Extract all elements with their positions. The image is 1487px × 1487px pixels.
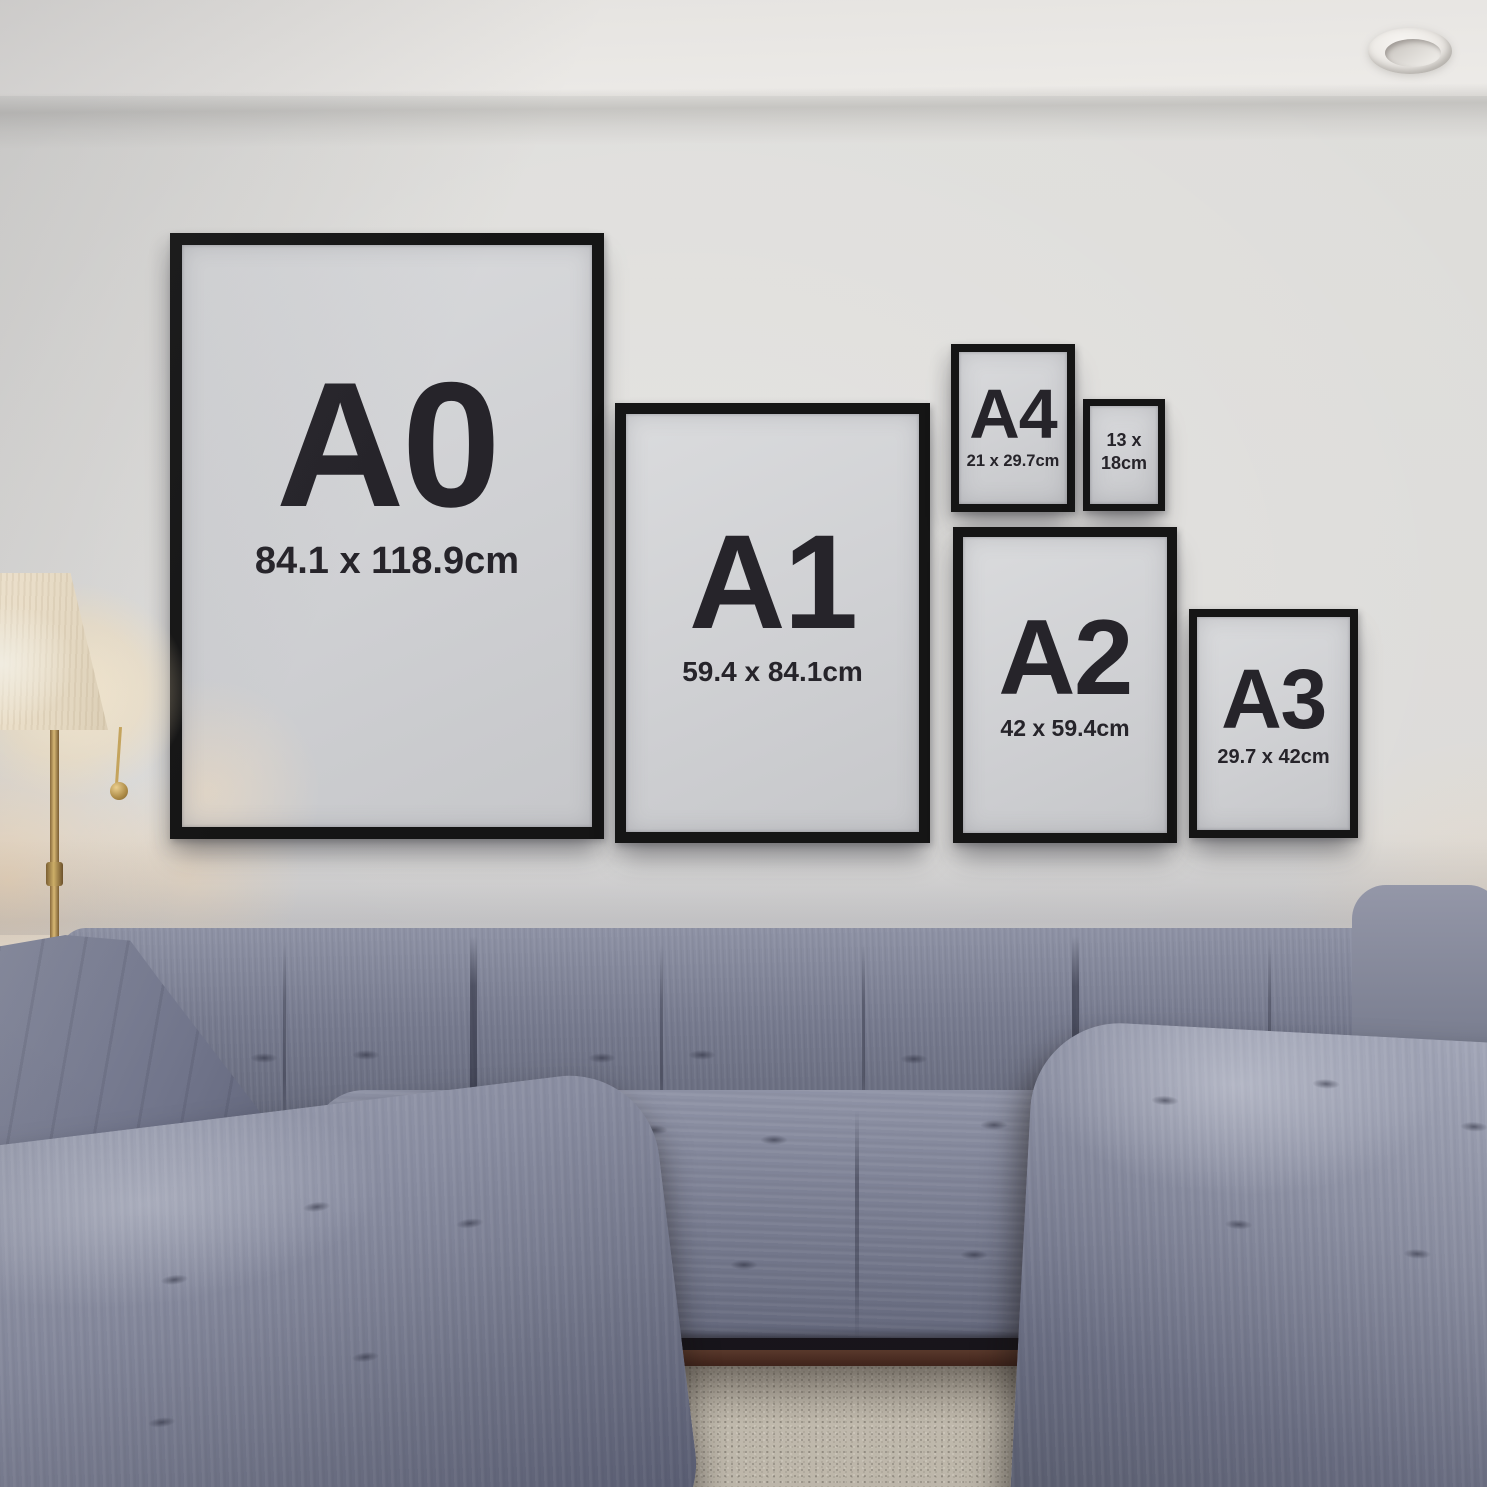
tuft-dimple — [900, 1054, 928, 1064]
tuft-dimple — [1224, 1219, 1252, 1230]
tuft-dimple — [980, 1120, 1008, 1130]
poster-frame-a1: A1 59.4 x 84.1cm — [615, 403, 930, 843]
recessed-ceiling-light-inner — [1385, 39, 1441, 67]
poster-frame-a2: A2 42 x 59.4cm — [953, 527, 1177, 843]
tuft-dimple — [250, 1053, 278, 1063]
tuft-dimple — [455, 1217, 484, 1230]
poster-a3-size: 29.7 x 42cm — [1217, 746, 1329, 769]
poster-a3-text: A3 29.7 x 42cm — [1217, 664, 1329, 768]
tuft-dimple — [351, 1350, 380, 1363]
poster-a4: A4 21 x 29.7cm — [959, 352, 1067, 504]
poster-frame-a0: A0 84.1 x 118.9cm — [170, 233, 604, 839]
poster-a0: A0 84.1 x 118.9cm — [182, 245, 592, 827]
tuft-dimple — [730, 1260, 758, 1270]
wall-shadow-behind-sofa — [0, 840, 1487, 935]
seat-cushion-crease — [855, 1110, 859, 1340]
poster-a4-text: A4 21 x 29.7cm — [967, 385, 1060, 472]
poster-a4-label: A4 — [969, 385, 1056, 445]
poster-13x18: 13 x 18cm — [1090, 406, 1158, 504]
tuft-dimple — [352, 1050, 380, 1060]
poster-a0-label: A0 — [276, 369, 498, 520]
poster-a2-size: 42 x 59.4cm — [1000, 715, 1129, 742]
tuft-dimple — [160, 1273, 189, 1286]
tuft-dimple — [147, 1416, 176, 1429]
poster-frame-13x18: 13 x 18cm — [1083, 399, 1165, 511]
poster-a3: A3 29.7 x 42cm — [1197, 617, 1350, 830]
tuft-dimple — [1151, 1095, 1179, 1106]
tuft-dimple — [960, 1250, 988, 1260]
ceiling — [0, 0, 1487, 96]
tuft-dimple — [302, 1200, 331, 1213]
poster-a1-text: A1 59.4 x 84.1cm — [682, 526, 863, 688]
lamp-pole — [50, 726, 59, 940]
tuft-dimple — [1460, 1121, 1487, 1132]
cushion-seam — [283, 944, 286, 1134]
tuft-dimple — [1312, 1078, 1340, 1089]
poster-a0-size: 84.1 x 118.9cm — [255, 540, 519, 583]
poster-a1: A1 59.4 x 84.1cm — [626, 414, 919, 832]
poster-a0-text: A0 84.1 x 118.9cm — [255, 369, 519, 583]
poster-a4-size: 21 x 29.7cm — [967, 452, 1060, 471]
tuft-dimple — [588, 1053, 616, 1063]
sofa-right-chaise — [1006, 1019, 1487, 1487]
lamp-pull-chain-ball — [110, 782, 128, 800]
poster-13x18-text: 13 x 18cm — [1101, 429, 1147, 476]
poster-a2-text: A2 42 x 59.4cm — [998, 612, 1132, 742]
poster-a1-label: A1 — [689, 526, 856, 640]
lamp-pole-joint — [46, 862, 63, 886]
tuft-dimple — [1403, 1248, 1431, 1259]
living-room-scene: A0 84.1 x 118.9cm A1 59.4 x 84.1cm A4 21… — [0, 0, 1487, 1487]
poster-13x18-size-line2: 18cm — [1101, 452, 1147, 475]
poster-a2-label: A2 — [998, 612, 1132, 703]
poster-frame-a4: A4 21 x 29.7cm — [951, 344, 1075, 512]
tuft-dimple — [688, 1050, 716, 1060]
poster-frame-a3: A3 29.7 x 42cm — [1189, 609, 1358, 838]
poster-a2: A2 42 x 59.4cm — [963, 537, 1167, 833]
tuft-dimple — [760, 1135, 788, 1145]
ceiling-wall-shadow — [0, 83, 1487, 150]
poster-13x18-size-line1: 13 x — [1106, 429, 1141, 452]
poster-a1-size: 59.4 x 84.1cm — [682, 656, 863, 688]
poster-a3-label: A3 — [1221, 664, 1326, 735]
